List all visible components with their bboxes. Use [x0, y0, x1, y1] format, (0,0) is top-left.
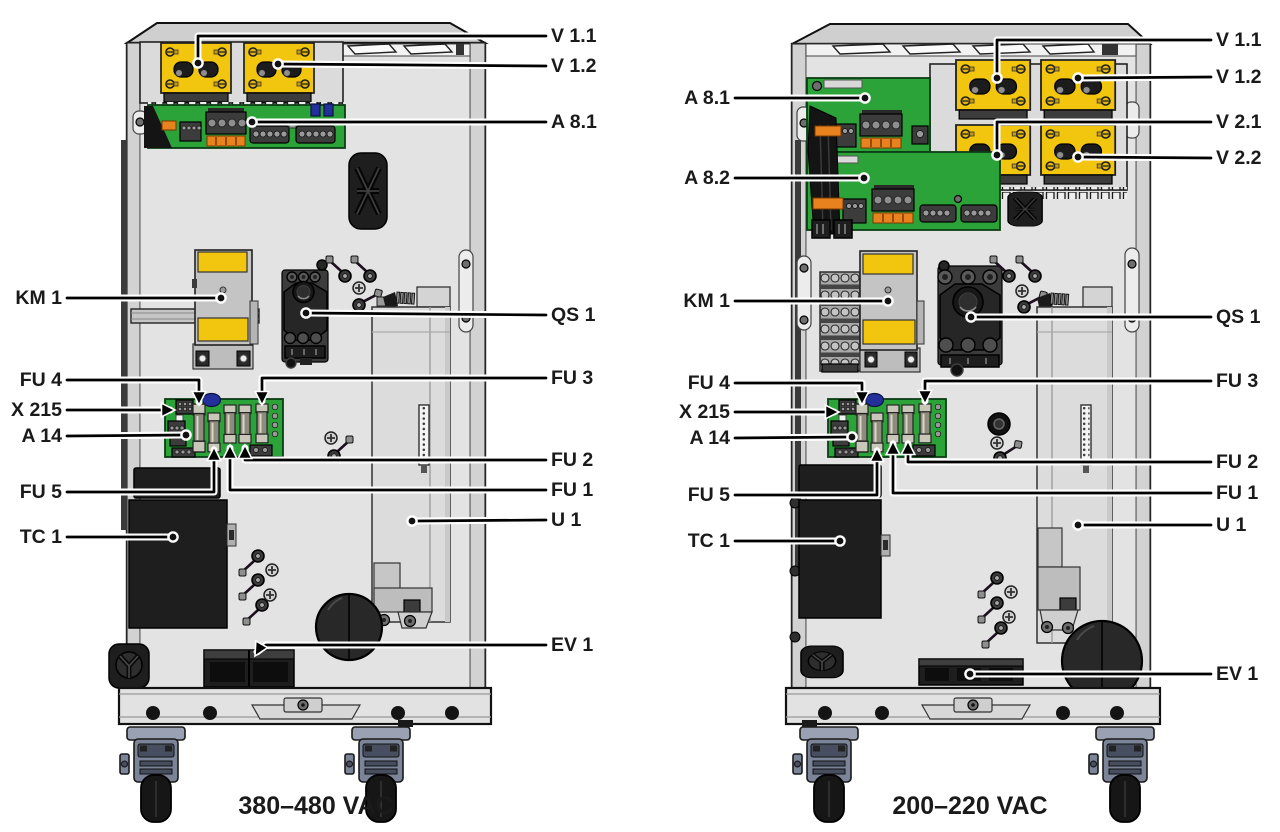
label-x215: X 215 [679, 401, 730, 423]
callout-u1 [1073, 520, 1211, 529]
label-v2-2: V 2.2 [1216, 147, 1262, 169]
callout-a8-1 [247, 117, 546, 126]
caster-left [793, 727, 858, 822]
cabinet-380-480 [109, 23, 491, 822]
label-a14: A 14 [22, 425, 63, 447]
callout-tc1 [67, 532, 178, 541]
label-tc1: TC 1 [688, 530, 730, 552]
module-v1-2 [1041, 60, 1115, 119]
label-u1: U 1 [1216, 514, 1247, 536]
module-v1-1 [956, 60, 1030, 119]
label-v1-2: V 1.2 [1216, 66, 1262, 88]
door-seal [121, 140, 127, 530]
callout-a8-2 [735, 173, 869, 182]
label-fu3: FU 3 [551, 367, 593, 389]
caption-380-480-vac: 380–480 VAC [238, 792, 393, 820]
pcb-a8-1 [144, 104, 345, 148]
label-km1: KM 1 [15, 287, 62, 309]
label-a8-2: A 8.2 [684, 167, 730, 189]
module-v1-2 [244, 43, 314, 102]
right-wall [1136, 44, 1150, 688]
callout-ev1 [965, 669, 1211, 678]
label-fu5: FU 5 [20, 481, 62, 503]
label-km1: KM 1 [683, 290, 730, 312]
label-a8-1: A 8.1 [551, 111, 597, 133]
callout-tc1 [735, 536, 845, 545]
label-fu4: FU 4 [20, 369, 62, 391]
label-v2-1: V 2.1 [1216, 111, 1262, 133]
fuse-pcb [828, 394, 946, 458]
label-ev1: EV 1 [551, 634, 593, 656]
caster-right [1089, 727, 1154, 822]
right-wall [470, 43, 485, 688]
fan-ev1 [204, 650, 294, 687]
diagram-page: V 1.1 V 1.2 A 8.1 QS 1 FU 3 FU 2 FU 1 U … [0, 0, 1280, 832]
callout-a8-1 [735, 93, 870, 102]
latch-emblem [349, 153, 387, 229]
label-tc1: TC 1 [20, 526, 62, 548]
label-fu2: FU 2 [551, 449, 593, 471]
label-v1-1: V 1.1 [1216, 29, 1262, 51]
label-fu1: FU 1 [551, 479, 593, 501]
y-emblem [109, 644, 149, 688]
label-x215: X 215 [11, 399, 62, 421]
base-frame [119, 688, 491, 727]
caption-200-220-vac: 200–220 VAC [892, 792, 1047, 820]
label-a8-1: A 8.1 [684, 87, 730, 109]
fuse-pcb [165, 394, 283, 458]
label-ev1: EV 1 [1216, 663, 1258, 685]
screw-icon [325, 432, 337, 444]
label-u1: U 1 [551, 509, 582, 531]
callout-km1 [735, 296, 893, 305]
label-qs1: QS 1 [1216, 306, 1261, 328]
label-fu3: FU 3 [1216, 370, 1258, 392]
latch-emblem [1008, 192, 1042, 226]
base-frame [786, 688, 1160, 727]
label-fu1: FU 1 [1216, 482, 1258, 504]
screw-icon [136, 118, 144, 126]
caster-left [120, 727, 185, 822]
label-v1-2: V 1.2 [551, 55, 597, 77]
label-fu4: FU 4 [688, 372, 730, 394]
y-emblem [801, 646, 843, 678]
label-a14: A 14 [690, 427, 731, 449]
cabinet-diagram: V 1.1 V 1.2 A 8.1 QS 1 FU 3 FU 2 FU 1 U … [0, 0, 1280, 832]
callout-km1 [67, 293, 226, 302]
cabinet-200-220 [786, 24, 1160, 822]
screw-icon [462, 260, 470, 268]
label-v1-1: V 1.1 [551, 25, 597, 47]
label-fu2: FU 2 [1216, 451, 1258, 473]
callout-qs1 [966, 312, 1211, 321]
label-fu5: FU 5 [688, 484, 730, 506]
label-qs1: QS 1 [551, 304, 596, 326]
